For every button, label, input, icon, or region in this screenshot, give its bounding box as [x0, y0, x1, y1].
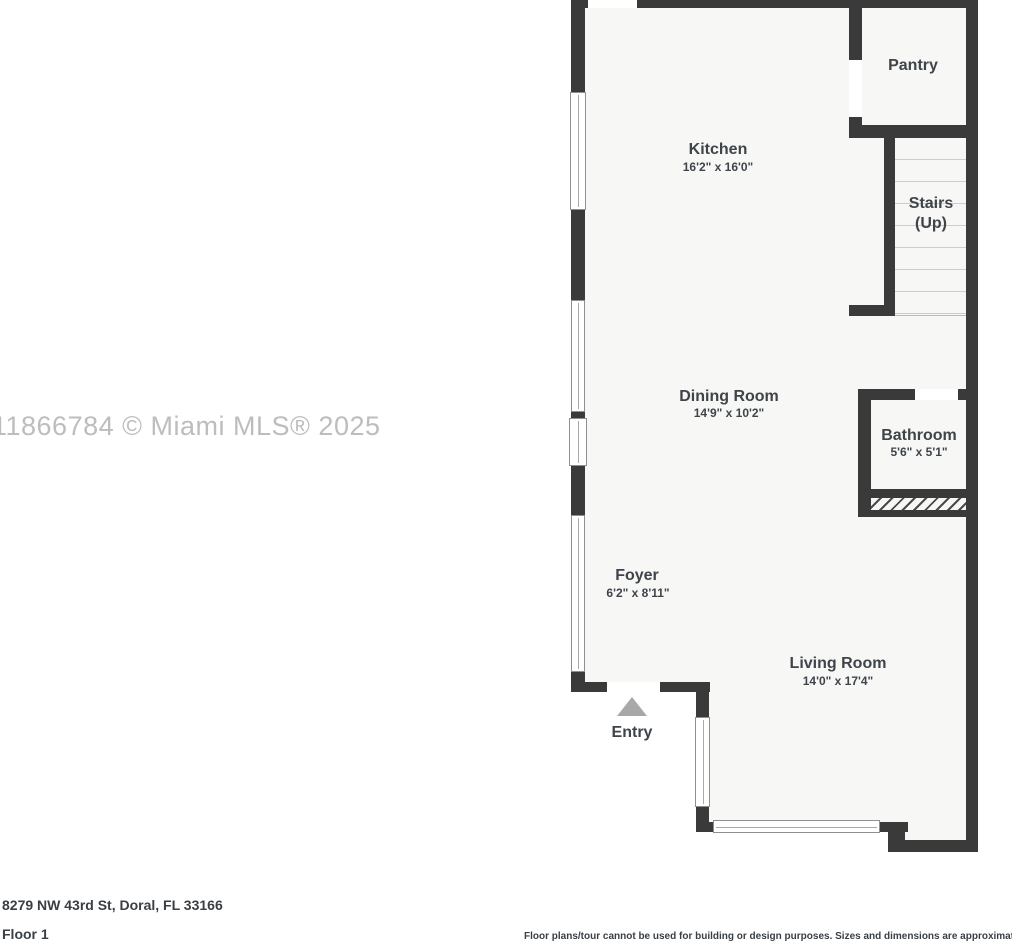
room-label-entry: Entry	[612, 724, 653, 742]
window-dining-left-upper	[571, 300, 585, 412]
room-dims-foyer: 6'2" x 8'11"	[606, 587, 669, 600]
wall-foyer-bottom	[660, 682, 710, 692]
room-label-pantry: Pantry	[888, 57, 938, 75]
mls-watermark: 11866784 © Miami MLS® 2025	[0, 411, 381, 442]
wall-pantry-bottom	[849, 125, 978, 138]
wall-left	[571, 466, 585, 515]
room-label-foyer: Foyer	[615, 567, 659, 585]
floor-fill-living	[696, 692, 978, 832]
floor-plan-canvas: Kitchen 16'2" x 16'0" Pantry Stairs (Up)…	[0, 0, 1012, 944]
room-label-dining: Dining Room	[679, 388, 779, 406]
room-dims-dining: 14'9" x 10'2"	[694, 407, 764, 420]
room-label-stairs: Stairs	[909, 195, 953, 213]
wall-left	[571, 8, 585, 92]
door-opening-entry	[607, 682, 660, 692]
floor-label: Floor 1	[2, 926, 49, 942]
wall-living-bottom	[888, 840, 978, 852]
opening-top-wall	[588, 0, 637, 8]
room-dims-bathroom: 5'6" x 5'1"	[890, 446, 947, 459]
window-living-bottom	[713, 820, 880, 833]
door-opening-pantry	[849, 60, 862, 117]
disclaimer-text: Floor plans/tour cannot be used for buil…	[524, 931, 1012, 942]
wall-bath-bottom	[858, 489, 966, 498]
wall-living-bottom	[696, 822, 713, 832]
wall-pantry-left	[849, 0, 862, 60]
under-stairs-hatch	[871, 498, 966, 510]
room-dims-kitchen: 16'2" x 16'0"	[683, 161, 753, 174]
window-kitchen-left	[570, 92, 586, 210]
door-opening-bathroom	[915, 389, 958, 400]
window-foyer-left	[571, 515, 585, 672]
entry-direction-icon	[617, 697, 647, 716]
property-address: 8279 NW 43rd St, Doral, FL 33166	[2, 897, 223, 913]
wall-stairs-left	[884, 138, 895, 316]
room-label-bathroom: Bathroom	[881, 427, 957, 445]
room-dims-living: 14'0" x 17'4"	[803, 675, 873, 688]
wall-stairs-stub	[849, 305, 895, 316]
wall-left	[571, 210, 585, 300]
wall-living-left	[696, 692, 709, 717]
window-living-left	[695, 717, 710, 807]
wall-foyer-bottom	[571, 682, 607, 692]
room-label-kitchen: Kitchen	[689, 141, 748, 159]
room-label-living: Living Room	[790, 655, 887, 673]
wall-hatch-bottom	[858, 510, 966, 517]
window-dining-left-lower	[569, 418, 587, 466]
wall-bath-top	[958, 389, 966, 400]
room-label-stairs-sub: (Up)	[915, 215, 947, 233]
